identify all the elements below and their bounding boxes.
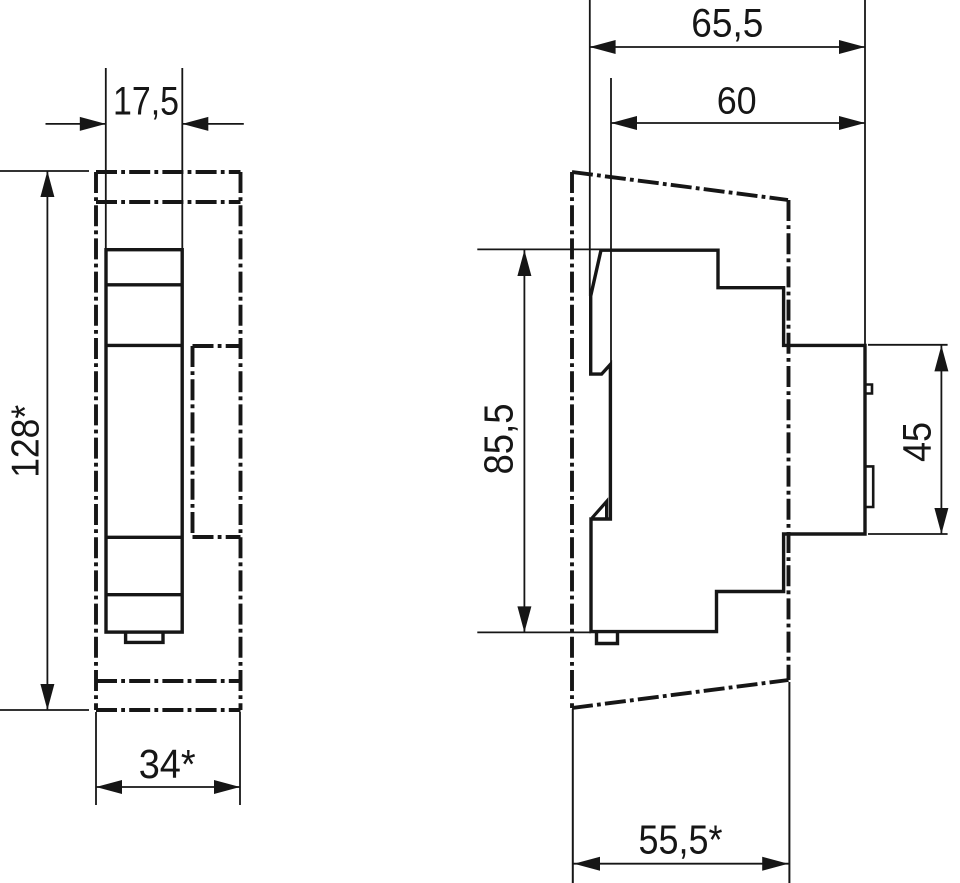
svg-text:45: 45: [896, 422, 940, 462]
svg-text:85,5: 85,5: [476, 404, 522, 475]
svg-text:55,5*: 55,5*: [639, 817, 723, 863]
svg-text:17,5: 17,5: [113, 80, 179, 124]
svg-text:65,5: 65,5: [691, 2, 763, 46]
svg-text:60: 60: [717, 81, 757, 123]
svg-text:128*: 128*: [4, 405, 47, 478]
svg-text:34*: 34*: [139, 741, 196, 787]
